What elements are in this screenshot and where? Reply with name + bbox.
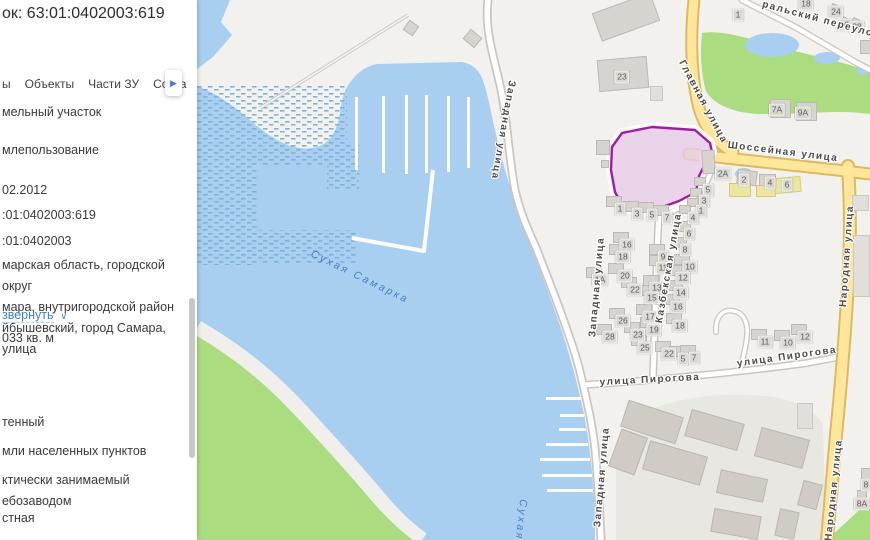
tabs-scroll-right-button[interactable]: ▶ (165, 70, 182, 96)
pier (547, 489, 593, 492)
house-number-badge: 1 (733, 9, 744, 22)
house-number-badge: 28 (602, 331, 617, 344)
pier (559, 428, 586, 431)
page-title: ок: 63:01:0402003:619 (2, 5, 165, 23)
pier (467, 97, 470, 168)
house-number-badge: 5 (647, 209, 658, 222)
panel-tab[interactable]: Объекты (25, 77, 75, 91)
pier (382, 96, 385, 173)
panel-tabs: ыОбъектыЧасти ЗУСоста ▶ (2, 71, 197, 97)
house-number-badge: 16 (670, 301, 685, 314)
building (853, 235, 870, 297)
water-label: Сухая (513, 499, 529, 540)
building (797, 480, 823, 510)
house-number-badge: 12 (675, 272, 690, 285)
house-number-badge: 8 (680, 244, 691, 257)
building (463, 29, 483, 49)
house-number-badge: 6 (782, 179, 793, 192)
house-number-badge: 1 (615, 203, 626, 216)
house-number-badge: 23 (630, 329, 645, 342)
pier (447, 96, 450, 172)
building (774, 508, 799, 540)
cadastral-map-app: ок: 63:01:0402003:619 ыОбъектыЧасти ЗУСо… (0, 0, 870, 540)
building (701, 150, 715, 175)
house-number-badge: 10 (780, 337, 795, 350)
building (797, 403, 813, 429)
house-number-badge: 2А (715, 168, 731, 181)
parcel-info-panel: ок: 63:01:0402003:619 ыОбъектыЧасти ЗУСо… (0, 0, 197, 540)
house-number-badge: 5 (678, 353, 689, 366)
house-number-badge: 7 (689, 352, 700, 365)
building (684, 409, 745, 451)
house-number-badge: 12 (797, 331, 812, 344)
building (716, 469, 768, 502)
panel-scrollbar-thumb[interactable] (189, 298, 195, 458)
info-row-value: ктически занимаемый ебозаводом (2, 470, 130, 512)
building (601, 160, 609, 168)
info-row-value: мли населенных пунктов (2, 441, 146, 462)
pier (425, 95, 428, 173)
street-label: Западная улица (587, 236, 607, 337)
house-number-badge: 4 (688, 212, 699, 225)
house-number-badge: 11 (758, 336, 773, 349)
building (592, 0, 661, 42)
house-number-badge: 22 (627, 284, 642, 297)
house-number-badge: 14 (673, 287, 688, 300)
house-number-badge: 25 (637, 342, 652, 355)
info-row-value: мельный участок (2, 102, 101, 123)
building (710, 508, 761, 540)
pier (405, 95, 408, 174)
house-number-badge: 3 (632, 208, 643, 221)
building (650, 86, 663, 101)
building (754, 427, 810, 469)
building (642, 440, 708, 485)
chevron-down-icon: ∨ (61, 311, 68, 321)
street-label: Западная улица (489, 79, 517, 180)
pier (546, 397, 581, 400)
house-number-badge: 19 (646, 324, 661, 337)
house-number-badge: 18 (615, 251, 630, 264)
house-number-badge: 4 (765, 177, 776, 190)
expand-link-label: звернуть (2, 308, 54, 323)
info-row-value: :01:0402003 (2, 231, 72, 252)
house-number-badge: 8 (861, 479, 870, 492)
chevron-right-icon: ▶ (170, 78, 177, 88)
pier (542, 474, 592, 477)
info-row-value: 033 кв. м (2, 328, 54, 349)
street-label: улица Пирогова (599, 372, 700, 388)
info-row-value: :01:0402003:619 (2, 205, 96, 226)
building (596, 140, 610, 155)
street-label: Главная улица (676, 58, 729, 145)
pier (355, 97, 358, 170)
house-number-badge: 8А (854, 498, 870, 511)
building (860, 40, 870, 54)
house-number-badge: 18 (672, 320, 687, 333)
map-overlay: 118242628237А9А2А24653141357681012141618… (197, 0, 870, 540)
map-canvas[interactable]: 118242628237А9А2А24653141357681012141618… (197, 0, 870, 540)
info-row-value: 02.2012 (2, 180, 47, 201)
house-number-badge: 7А (769, 104, 785, 117)
panel-tab[interactable]: Части ЗУ (88, 77, 139, 91)
info-row-value: стная (2, 508, 35, 529)
expand-link[interactable]: звернуть∨ (2, 305, 67, 327)
house-number-badge: 9А (795, 107, 811, 120)
pier (546, 443, 588, 446)
panel-tab[interactable]: ы (2, 77, 11, 91)
pier (540, 458, 590, 461)
house-number-badge: 20 (617, 270, 632, 283)
water-label: Сухая Самарка (309, 248, 411, 306)
building (403, 20, 420, 37)
street-label: Шоссейная улица (727, 140, 839, 164)
house-number-badge: 2 (739, 174, 750, 187)
house-number-badge: 22 (661, 348, 676, 361)
info-row-value: млепользование (2, 140, 99, 161)
house-number-badge: 26 (615, 315, 630, 328)
street-label: Западная улица (592, 426, 612, 527)
house-number-badge: 23 (614, 71, 629, 84)
street-label: Народная улица (823, 439, 845, 540)
pier (560, 414, 584, 417)
house-number-badge: 6 (684, 228, 695, 241)
info-row-value: тенный (2, 412, 44, 433)
